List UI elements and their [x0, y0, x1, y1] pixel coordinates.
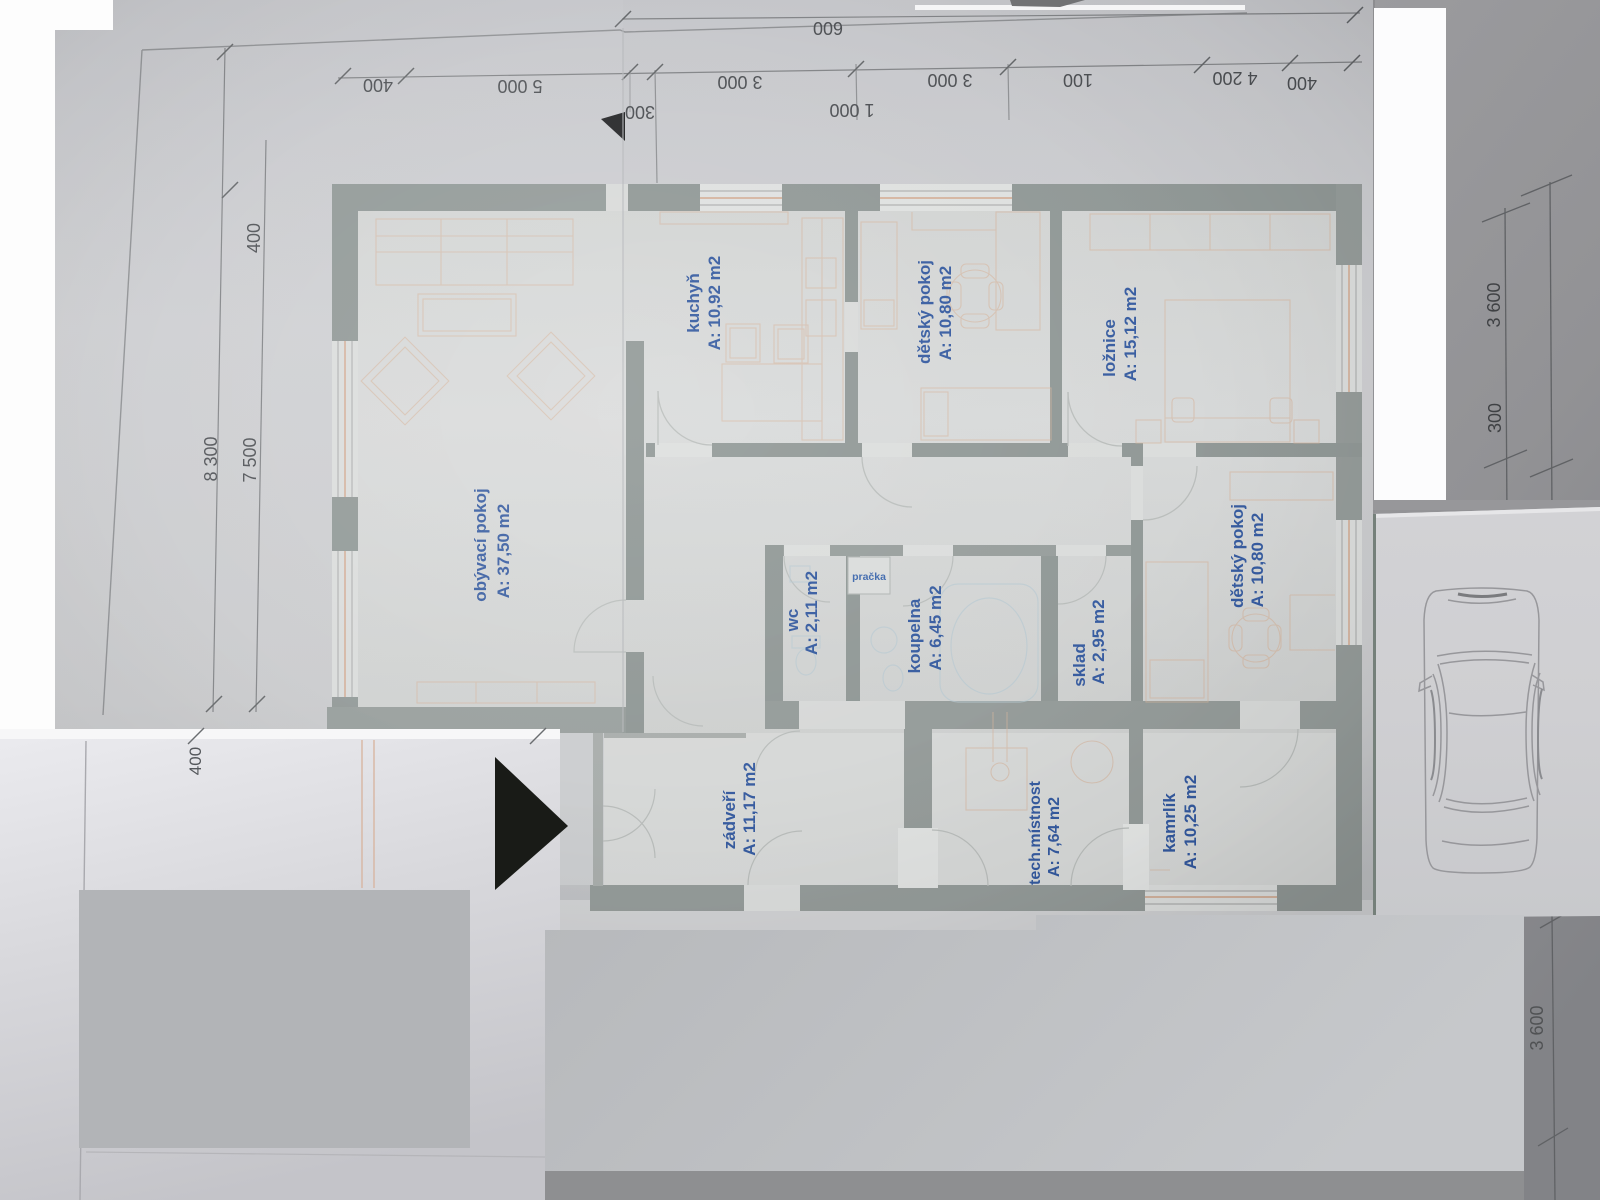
svg-text:400: 400 [186, 747, 205, 775]
svg-text:300: 300 [1485, 403, 1505, 433]
svg-text:3 600: 3 600 [1484, 282, 1504, 327]
svg-text:3 600: 3 600 [1527, 1005, 1547, 1050]
